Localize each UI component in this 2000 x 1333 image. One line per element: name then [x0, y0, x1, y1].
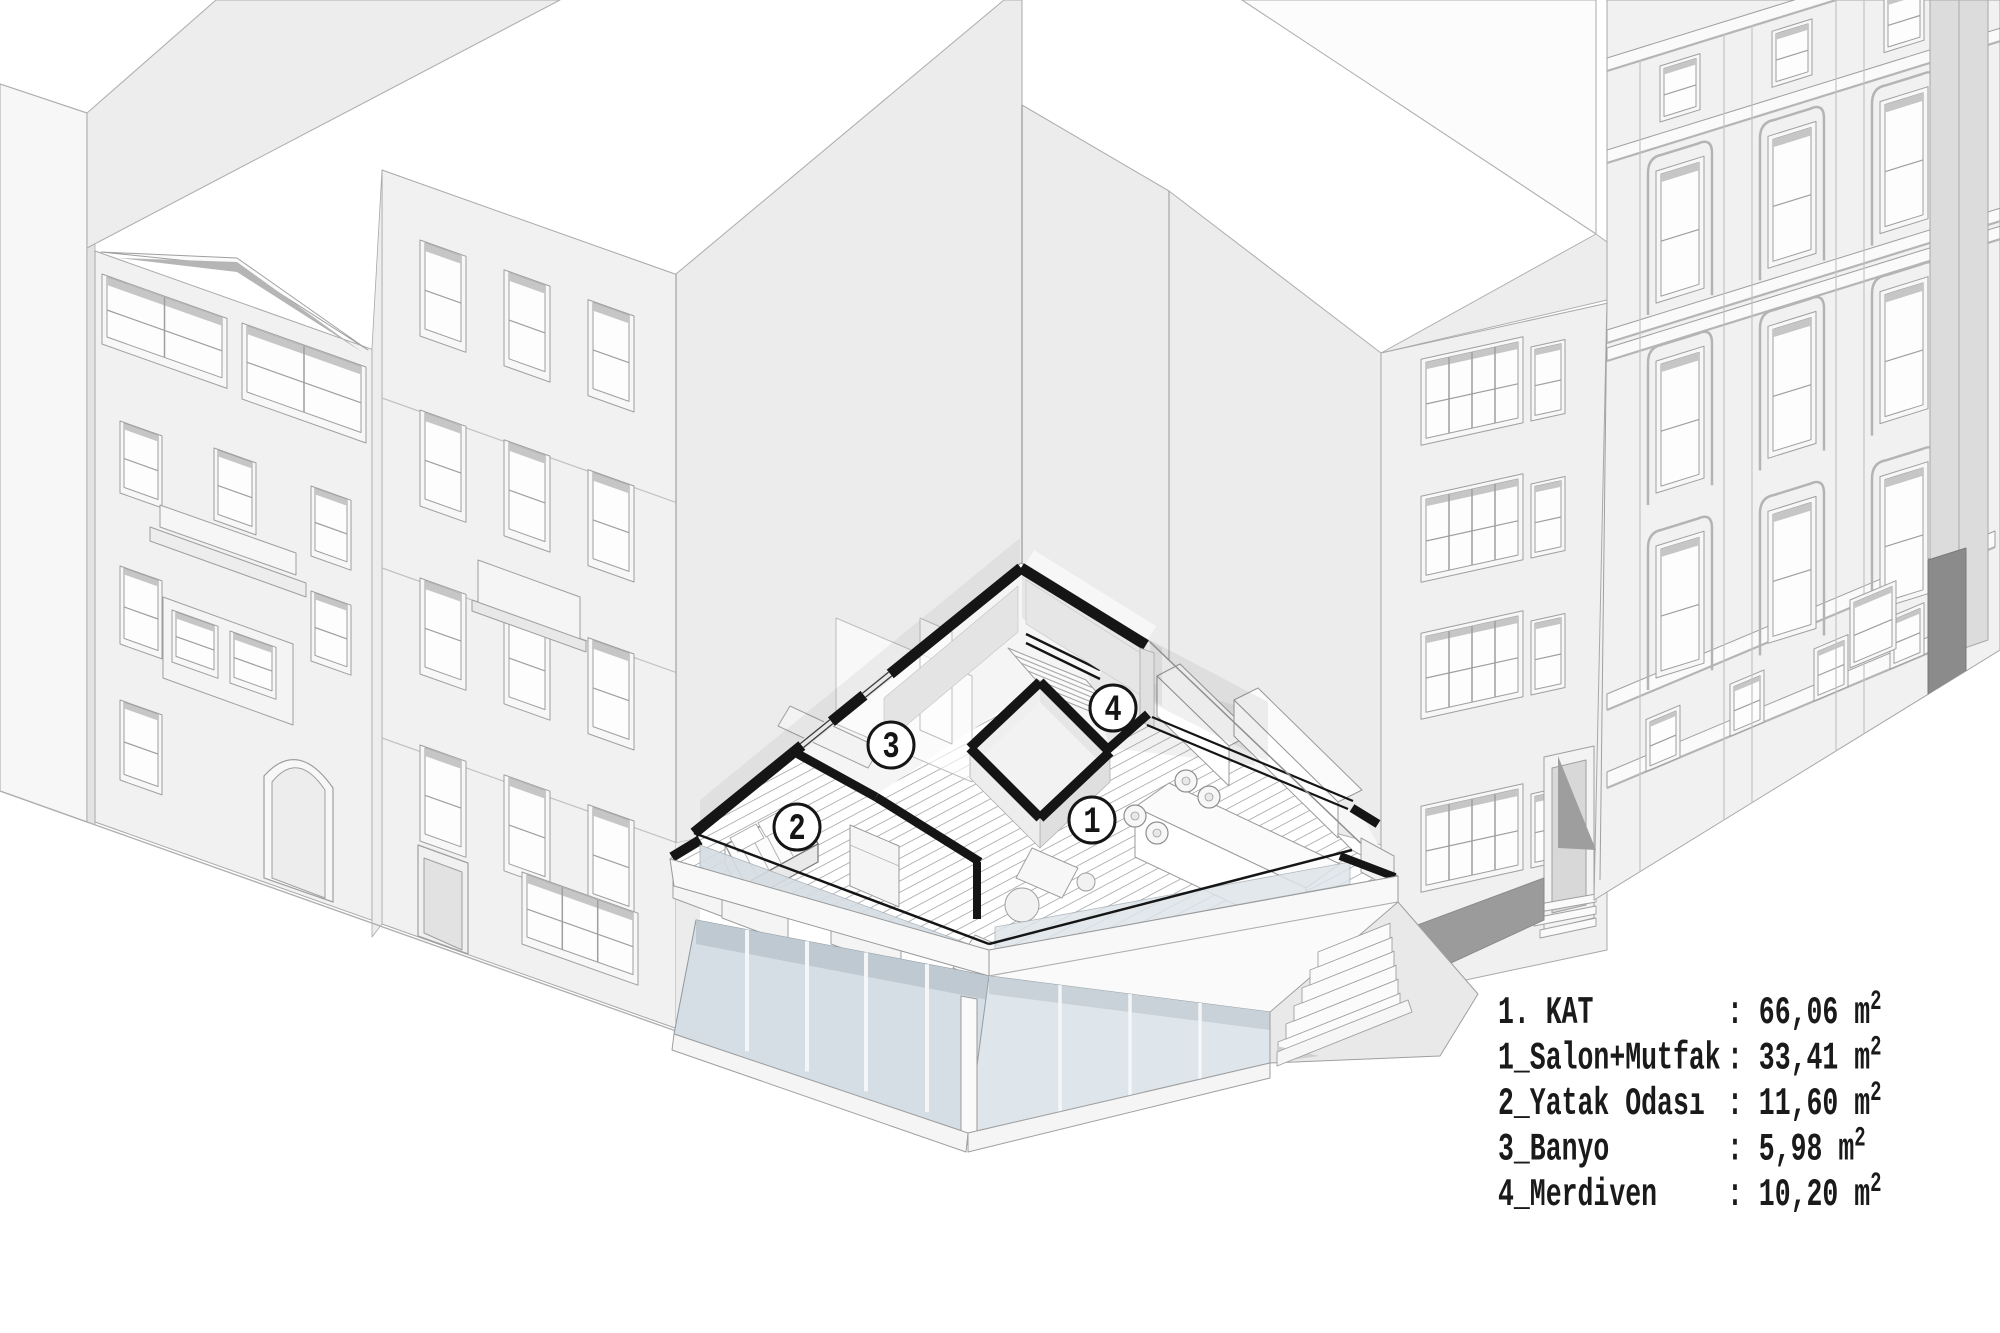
- svg-text:4_Merdiven: 4_Merdiven: [1498, 1173, 1657, 1217]
- svg-text:2: 2: [788, 808, 805, 850]
- svg-text:: 10,20 m2: : 10,20 m2: [1727, 1169, 1882, 1218]
- svg-text:1. KAT: 1. KAT: [1498, 991, 1593, 1035]
- svg-text:3: 3: [882, 726, 899, 768]
- svg-text:1_Salon+Mutfak: 1_Salon+Mutfak: [1498, 1037, 1721, 1081]
- svg-text:4: 4: [1104, 689, 1121, 731]
- svg-text:: 66,06 m2: : 66,06 m2: [1727, 987, 1882, 1036]
- svg-text:: 33,41 m2: : 33,41 m2: [1727, 1032, 1882, 1081]
- svg-text:1: 1: [1083, 801, 1100, 843]
- svg-text:: 11,60 m2: : 11,60 m2: [1727, 1078, 1882, 1127]
- svg-text:: 5,98 m2: : 5,98 m2: [1727, 1123, 1866, 1172]
- svg-text:2_Yatak Odası: 2_Yatak Odası: [1498, 1082, 1705, 1126]
- svg-text:3_Banyo: 3_Banyo: [1498, 1128, 1609, 1172]
